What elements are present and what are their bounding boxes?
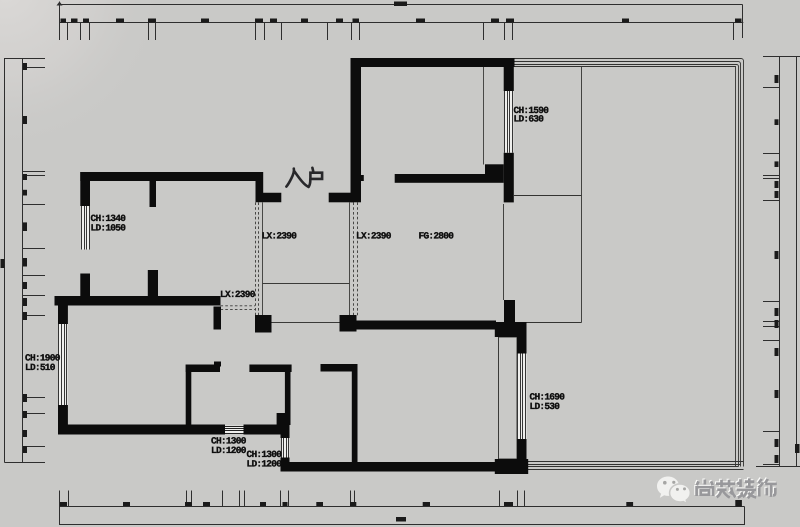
svg-text:LX:2390: LX:2390 xyxy=(356,231,392,242)
svg-text:LX:2390: LX:2390 xyxy=(220,289,256,300)
svg-text:LD:510: LD:510 xyxy=(25,362,56,373)
svg-text:LD:630: LD:630 xyxy=(514,114,545,125)
svg-text:LD:1200: LD:1200 xyxy=(247,459,283,470)
svg-text:LD:1050: LD:1050 xyxy=(91,223,127,234)
svg-text:LD:1200: LD:1200 xyxy=(211,445,247,456)
svg-text:LX:2390: LX:2390 xyxy=(262,231,298,242)
svg-text:LD:530: LD:530 xyxy=(530,401,561,412)
svg-text:FG:2800: FG:2800 xyxy=(419,231,455,242)
